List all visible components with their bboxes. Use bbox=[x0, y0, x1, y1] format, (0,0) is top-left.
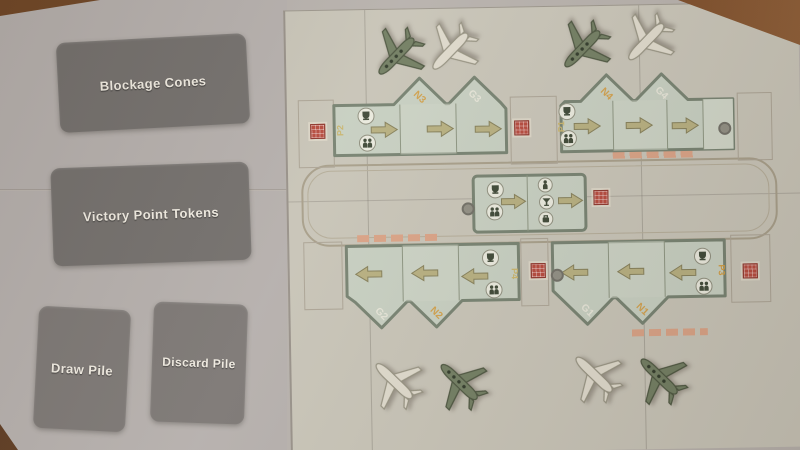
apron-lane bbox=[303, 242, 343, 311]
gate-block-bottom-right[interactable]: P3 G1 N1 bbox=[546, 234, 730, 331]
gate-block-center[interactable] bbox=[469, 170, 590, 236]
game-table-photo: Blockage Cones Victory Point Tokens Draw… bbox=[0, 0, 800, 450]
trophy-icon bbox=[487, 182, 503, 198]
victory-point-tokens-slot[interactable]: Victory Point Tokens bbox=[50, 162, 251, 267]
gate-row-label: P1 bbox=[556, 121, 566, 132]
trophy-icon bbox=[358, 108, 374, 124]
drink-icon bbox=[539, 195, 553, 209]
airport-game-board: P2 N3 G3 P bbox=[283, 2, 800, 450]
airplane-green[interactable] bbox=[614, 332, 704, 422]
red-square-token[interactable] bbox=[593, 190, 608, 205]
airplane-green[interactable] bbox=[414, 337, 504, 427]
red-square-token[interactable] bbox=[514, 120, 529, 135]
passenger-icon bbox=[538, 178, 552, 192]
blockage-cones-slot[interactable]: Blockage Cones bbox=[56, 33, 250, 133]
gate-row-label: P3 bbox=[717, 264, 727, 275]
discard-pile-label: Discard Pile bbox=[162, 355, 236, 372]
gate-block-top-left[interactable]: P2 N3 G3 bbox=[329, 69, 511, 162]
apron-lane bbox=[737, 92, 773, 161]
draw-pile-label: Draw Pile bbox=[51, 360, 114, 378]
gate-block-bottom-left[interactable]: P4 G2 N2 bbox=[342, 237, 524, 334]
passengers-icon bbox=[486, 282, 502, 298]
playmat-left-panel: Blockage Cones Victory Point Tokens Draw… bbox=[0, 0, 287, 450]
draw-pile-slot[interactable]: Draw Pile bbox=[33, 306, 131, 433]
passengers-icon bbox=[359, 135, 375, 151]
red-square-token[interactable] bbox=[531, 263, 546, 278]
trophy-icon bbox=[482, 250, 498, 266]
luggage-icon bbox=[539, 212, 553, 226]
blockage-cones-label: Blockage Cones bbox=[99, 73, 206, 94]
taxiway-dashes bbox=[632, 328, 708, 336]
gate-row-label: P2 bbox=[335, 125, 345, 136]
trophy-icon bbox=[559, 103, 575, 119]
passengers-icon bbox=[696, 278, 712, 294]
gate-row-label: P4 bbox=[510, 268, 520, 279]
passengers-icon bbox=[487, 204, 503, 220]
victory-point-tokens-label: Victory Point Tokens bbox=[83, 204, 220, 224]
red-square-token[interactable] bbox=[743, 263, 758, 278]
trophy-icon bbox=[694, 248, 710, 264]
discard-pile-slot[interactable]: Discard Pile bbox=[150, 301, 248, 424]
red-square-token[interactable] bbox=[310, 124, 325, 139]
